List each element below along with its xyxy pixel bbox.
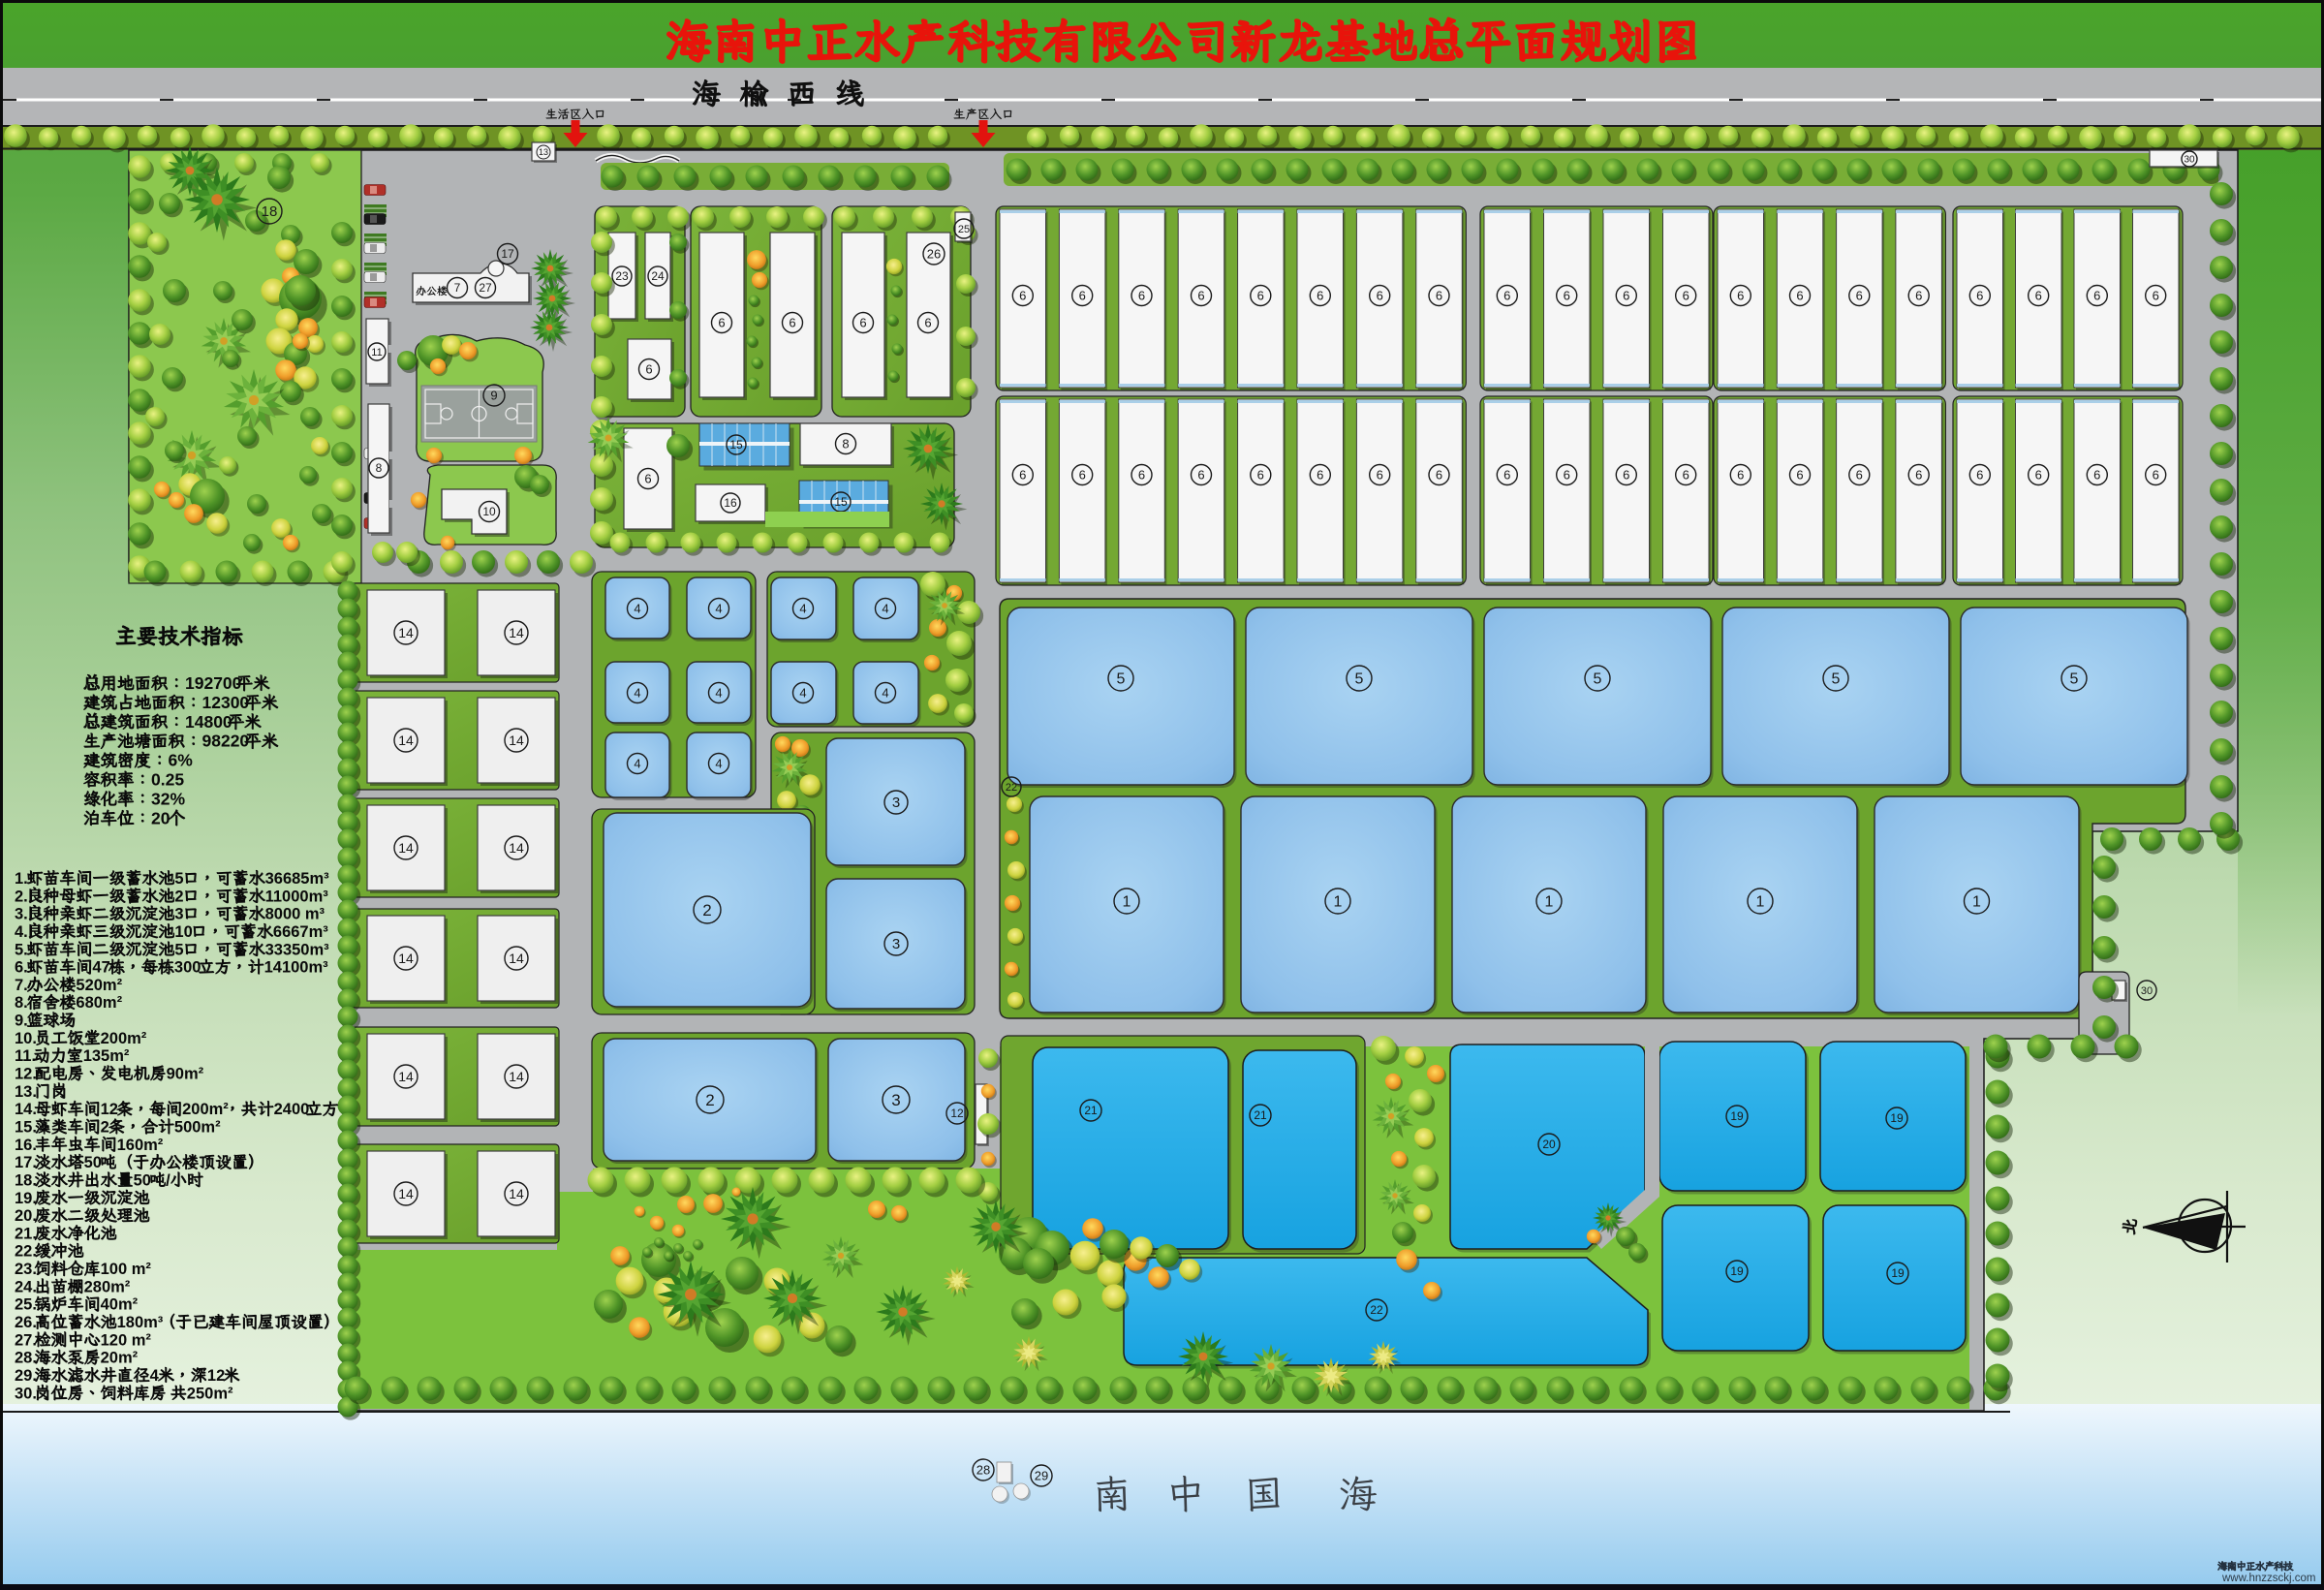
svg-text:6: 6 [2035,289,2042,303]
svg-text:4: 4 [634,602,640,616]
svg-text:15.: 15. [15,1119,37,1137]
svg-text:6: 6 [1436,468,1442,483]
svg-text:6: 6 [1623,289,1629,303]
svg-text:13: 13 [539,147,548,157]
svg-text:28.: 28. [15,1350,37,1367]
svg-text:24.: 24. [15,1278,37,1295]
svg-text:10: 10 [174,923,192,941]
svg-text:6: 6 [1138,468,1145,483]
svg-text:20: 20 [151,808,170,827]
svg-text:30.: 30. [15,1385,37,1402]
svg-text:12: 12 [207,1367,225,1385]
svg-text:6: 6 [645,362,652,377]
svg-text:14: 14 [509,1186,524,1201]
svg-text:16.: 16. [15,1137,37,1154]
svg-text:8: 8 [376,461,383,475]
svg-text:14800: 14800 [185,712,232,732]
svg-text:24: 24 [651,269,665,283]
svg-text:1.: 1. [15,870,28,888]
svg-text:6: 6 [1856,289,1863,303]
svg-text:680m²: 680m² [76,994,122,1012]
svg-text:20.: 20. [15,1207,37,1225]
svg-text:4: 4 [715,602,722,616]
svg-text:11.: 11. [15,1047,36,1065]
svg-text:14: 14 [509,1069,524,1084]
svg-text:19: 19 [1730,1264,1744,1278]
svg-text:26.: 26. [15,1314,37,1331]
svg-text:23.: 23. [15,1261,37,1278]
svg-text:6: 6 [1976,289,1983,303]
svg-text:2: 2 [101,1119,109,1137]
svg-text:6: 6 [1377,468,1383,483]
svg-text:6: 6 [2153,468,2159,483]
svg-text:1: 1 [1972,894,1981,911]
svg-text:12: 12 [950,1107,964,1120]
svg-text:6: 6 [1317,289,1323,303]
svg-text:25: 25 [958,224,970,235]
svg-text:6: 6 [1503,289,1510,303]
svg-text:5: 5 [1832,671,1841,688]
svg-text:19: 19 [1891,1266,1905,1280]
svg-text:30: 30 [2184,155,2195,166]
svg-text:4: 4 [799,602,806,616]
svg-text:6.: 6. [15,959,28,977]
svg-text:4: 4 [715,757,722,771]
svg-text:5.: 5. [15,941,28,958]
svg-text:19.: 19. [15,1190,37,1207]
svg-text:6: 6 [1856,468,1863,483]
svg-text:12.: 12. [15,1066,37,1083]
svg-text:6: 6 [1257,468,1264,483]
svg-text:2400: 2400 [274,1101,310,1118]
svg-text:19: 19 [1730,1109,1744,1123]
svg-text:40m²: 40m² [101,1296,139,1314]
svg-text:21: 21 [1084,1104,1098,1117]
svg-text:16: 16 [724,496,737,510]
svg-text:30: 30 [2141,985,2153,997]
svg-text:3: 3 [891,1091,900,1109]
svg-text:2: 2 [702,901,711,920]
svg-text:1: 1 [1756,894,1765,911]
svg-text:5: 5 [1355,671,1364,688]
svg-text:26: 26 [927,247,941,262]
svg-text:6: 6 [1737,468,1744,483]
svg-text:11000m³: 11000m³ [265,888,329,905]
svg-text:33350m³: 33350m³ [265,941,330,958]
svg-text:3.: 3. [15,906,28,923]
svg-text:6: 6 [1197,289,1204,303]
svg-text:10: 10 [482,505,496,518]
svg-text:20m²: 20m² [101,1350,139,1367]
svg-text:6: 6 [2093,468,2100,483]
svg-text:14: 14 [509,625,524,640]
svg-text:4: 4 [882,686,888,701]
svg-text:25.: 25. [15,1296,37,1314]
svg-text:14: 14 [398,1069,414,1084]
svg-text:300: 300 [174,959,201,977]
svg-text:15: 15 [729,438,743,452]
svg-text:6: 6 [1019,468,1026,483]
svg-text:21.: 21. [15,1225,37,1242]
svg-text:6: 6 [1564,289,1570,303]
svg-text:6: 6 [1436,289,1442,303]
svg-text:11: 11 [371,347,382,359]
svg-text:20: 20 [1542,1138,1556,1151]
svg-text:6: 6 [859,316,866,330]
svg-text:36685m³: 36685m³ [265,870,330,888]
svg-text:22: 22 [1006,782,1017,794]
svg-text:6667m³: 6667m³ [273,923,328,941]
svg-text:/: / [166,1171,170,1189]
svg-text:2: 2 [174,888,183,905]
svg-text:6: 6 [1197,468,1204,483]
svg-text:6: 6 [2153,289,2159,303]
svg-text:6: 6 [1019,289,1026,303]
svg-text:18: 18 [262,203,278,220]
svg-text:6: 6 [1079,468,1086,483]
svg-text:www.hnzzsckj.com: www.hnzzsckj.com [2221,1573,2316,1584]
svg-text:8.: 8. [15,994,28,1012]
svg-text:4: 4 [882,602,888,616]
svg-text:23: 23 [615,269,629,283]
svg-text:4: 4 [715,686,722,701]
svg-text:6: 6 [1623,468,1629,483]
svg-text:520m²: 520m² [76,977,122,994]
svg-text:21: 21 [1254,1108,1267,1122]
svg-text:6: 6 [1079,289,1086,303]
svg-text:6: 6 [1915,289,1922,303]
svg-text:6: 6 [1317,468,1323,483]
svg-text:6: 6 [2093,289,2100,303]
svg-text:6: 6 [1377,289,1383,303]
svg-text:28: 28 [976,1463,990,1478]
svg-text:6: 6 [1976,468,1983,483]
svg-text:50: 50 [134,1171,151,1189]
svg-text:14: 14 [398,625,414,640]
svg-text:12300: 12300 [202,693,250,712]
svg-text:17.: 17. [15,1154,37,1171]
svg-text:0.25: 0.25 [151,770,184,790]
svg-text:98220: 98220 [202,732,250,751]
svg-text:1: 1 [1545,894,1554,911]
svg-text:14: 14 [509,951,524,966]
svg-text:2: 2 [705,1091,714,1109]
svg-text:5: 5 [1594,671,1602,688]
svg-text:100 m²: 100 m² [101,1261,152,1278]
svg-text:6: 6 [1138,289,1145,303]
svg-text:13.: 13. [15,1083,37,1101]
svg-text:4: 4 [634,686,640,701]
svg-text:4: 4 [799,686,806,701]
svg-text:5: 5 [1117,671,1126,688]
svg-text:6: 6 [1915,468,1922,483]
svg-text:10.: 10. [15,1030,37,1047]
svg-text:3: 3 [174,906,183,923]
svg-text:280m²: 280m² [84,1278,131,1295]
svg-text:6: 6 [2035,468,2042,483]
svg-text:6: 6 [1257,289,1264,303]
svg-text:120 m²: 120 m² [101,1331,152,1349]
svg-text:5: 5 [174,870,183,888]
svg-text:14: 14 [509,840,524,856]
svg-text:14: 14 [398,840,414,856]
svg-text:8000 m³: 8000 m³ [265,906,325,923]
svg-text:6: 6 [1683,468,1689,483]
svg-text:6: 6 [644,472,651,486]
svg-text:22: 22 [1370,1303,1383,1317]
svg-text:18.: 18. [15,1171,37,1189]
svg-text:9: 9 [490,389,497,403]
svg-text:27: 27 [479,281,492,295]
svg-text:19: 19 [1890,1111,1904,1125]
svg-text:180m³: 180m³ [117,1314,164,1331]
svg-text:6: 6 [718,316,725,330]
svg-text:15: 15 [834,495,848,509]
svg-text:160m²: 160m² [117,1137,164,1154]
svg-text:3: 3 [892,936,900,952]
svg-text:14: 14 [398,733,414,748]
svg-text:200m²: 200m² [101,1030,147,1047]
svg-text:12: 12 [101,1101,118,1118]
svg-text:32%: 32% [151,789,185,808]
svg-text:192700: 192700 [185,673,242,693]
svg-text:29.: 29. [15,1367,37,1385]
svg-text:9.: 9. [15,1013,28,1030]
svg-text:14: 14 [509,733,524,748]
svg-text:50: 50 [84,1154,102,1171]
svg-text:4: 4 [634,757,640,771]
svg-text:6%: 6% [169,751,194,770]
svg-text:17: 17 [501,247,514,261]
svg-text:3: 3 [892,795,900,811]
svg-text:135m²: 135m² [83,1047,130,1065]
svg-text:6: 6 [1796,289,1803,303]
svg-text:14.: 14. [15,1101,37,1118]
svg-text:4.: 4. [15,923,28,941]
svg-text:250m²: 250m² [187,1385,233,1402]
svg-text:7: 7 [454,281,461,295]
svg-text:14: 14 [398,951,414,966]
svg-text:6: 6 [1796,468,1803,483]
svg-text:8: 8 [842,437,849,452]
svg-text:6: 6 [1564,468,1570,483]
svg-text:22.: 22. [15,1243,37,1261]
svg-text:200m²: 200m² [182,1101,229,1118]
svg-text:4: 4 [150,1367,160,1385]
svg-text:6: 6 [1683,289,1689,303]
svg-text:6: 6 [1737,289,1744,303]
svg-text:14100m³: 14100m³ [264,959,329,977]
svg-text:7.: 7. [15,977,28,994]
svg-text:2.: 2. [15,888,28,905]
svg-text:6: 6 [924,316,931,330]
svg-text:5: 5 [174,941,183,958]
svg-text:47: 47 [92,959,109,977]
svg-text:90m²: 90m² [167,1066,204,1083]
svg-text:6: 6 [1503,468,1510,483]
svg-text:14: 14 [398,1186,414,1201]
svg-text:500m²: 500m² [174,1119,221,1137]
svg-text:5: 5 [2070,671,2079,688]
svg-text:29: 29 [1035,1469,1048,1483]
svg-text:1: 1 [1123,894,1131,911]
svg-text:27.: 27. [15,1331,37,1349]
svg-text:6: 6 [789,316,795,330]
svg-text:1: 1 [1334,894,1343,911]
